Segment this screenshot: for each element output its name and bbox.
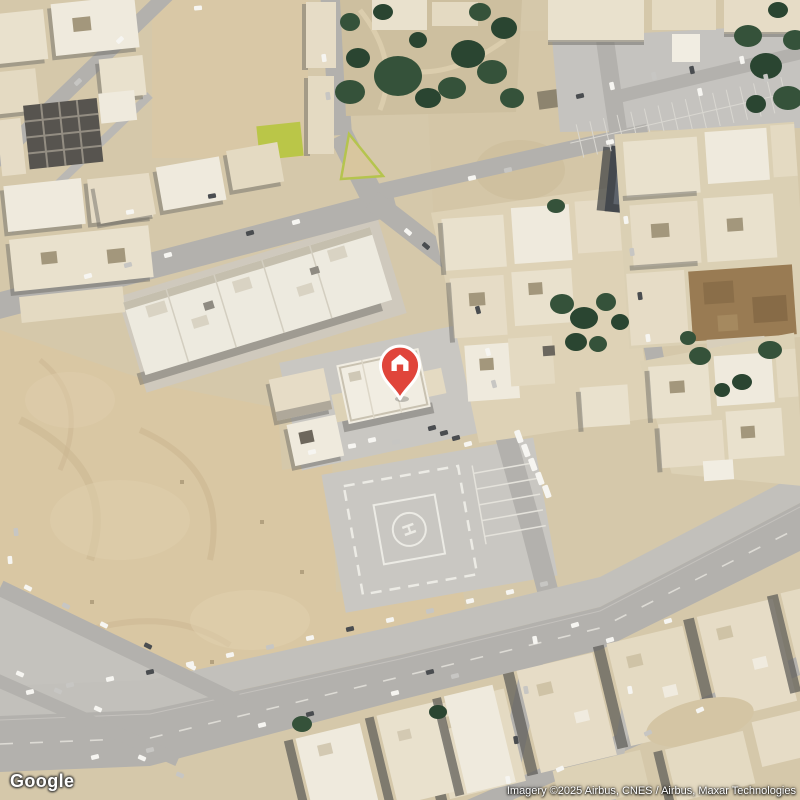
satellite-map-canvas[interactable]: H: [0, 0, 800, 800]
google-logo[interactable]: Google: [10, 771, 74, 792]
map-viewport[interactable]: H: [0, 0, 800, 800]
block-top-right: [614, 122, 800, 349]
imagery-attribution: Imagery ©2025 Airbus, CNES / Airbus, Max…: [507, 785, 796, 797]
